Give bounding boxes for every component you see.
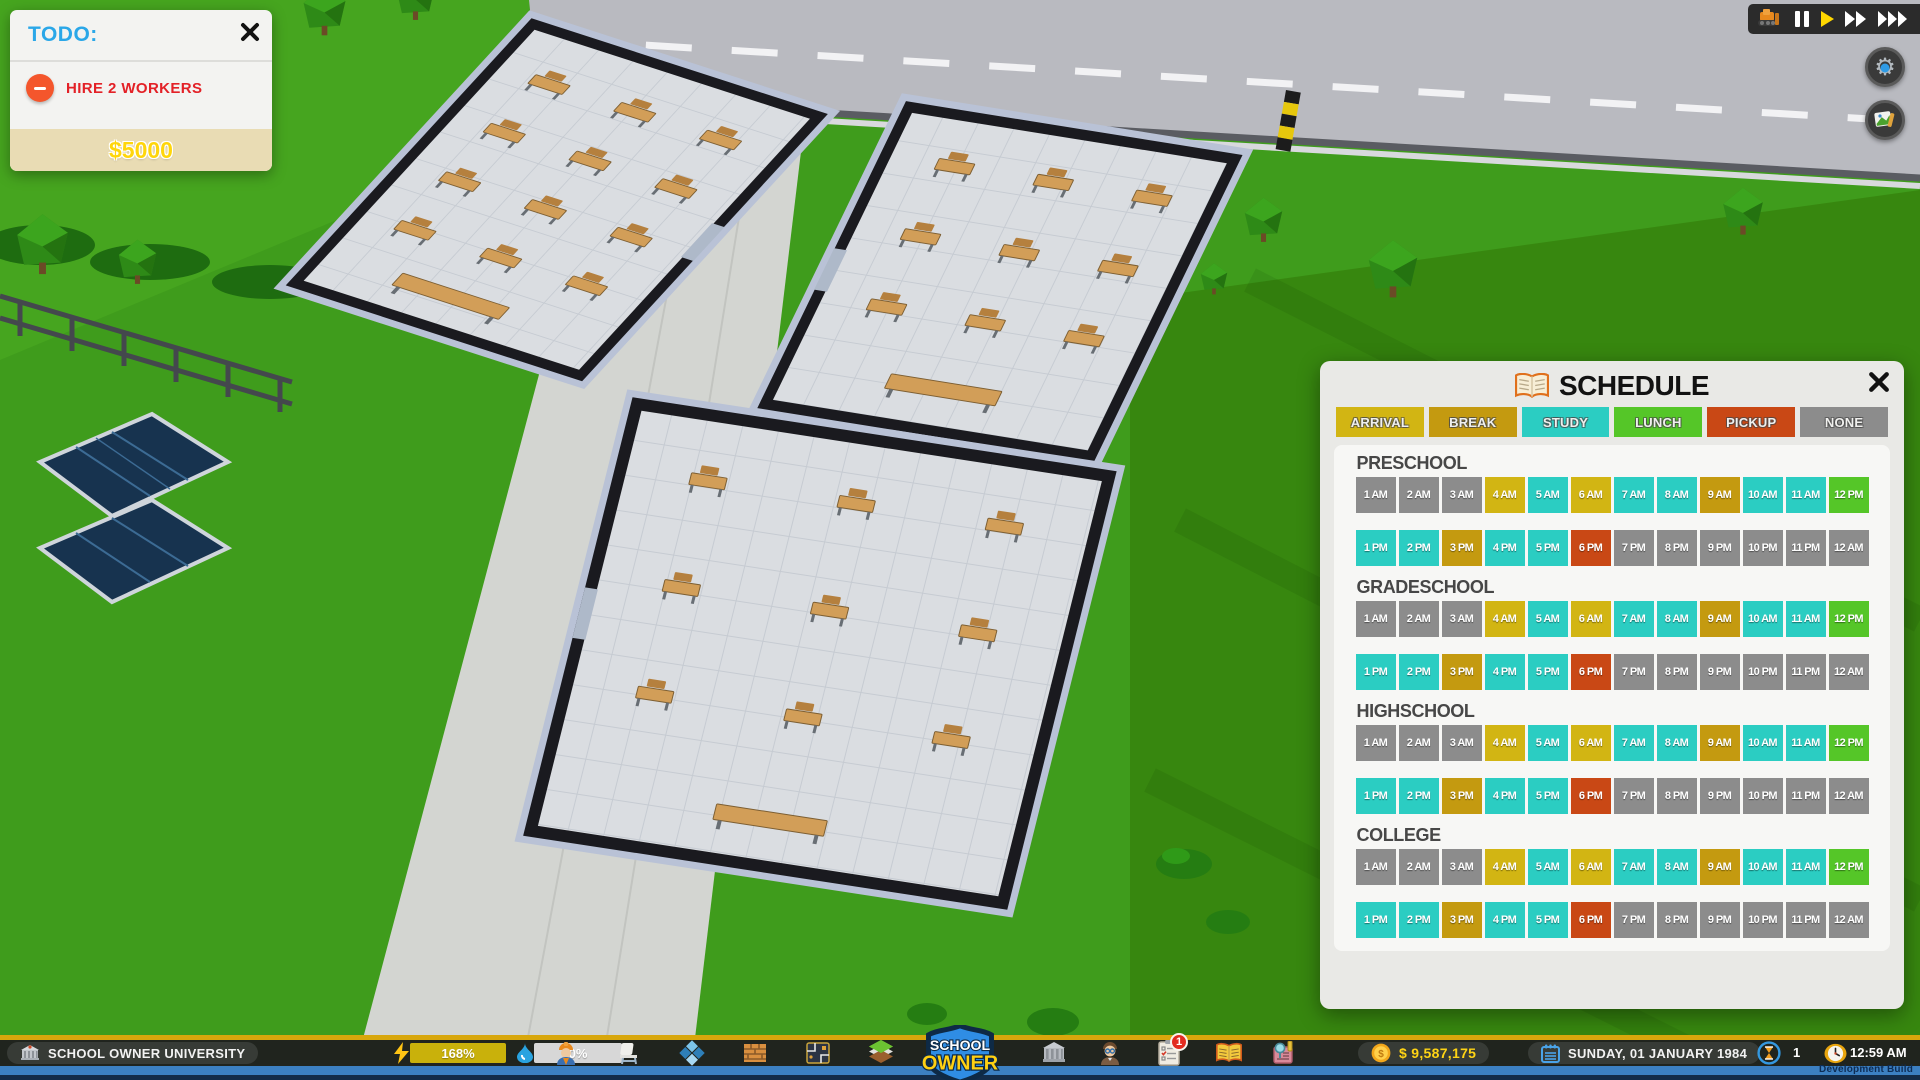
- schedule-cell-1pm[interactable]: 1 PM: [1356, 778, 1396, 814]
- schedule-cell-2pm[interactable]: 2 PM: [1399, 902, 1439, 938]
- schedule-cell-4pm[interactable]: 4 PM: [1485, 530, 1525, 566]
- task-status-icon: [26, 74, 54, 102]
- room-planner-button[interactable]: [805, 1040, 831, 1066]
- schedule-cell-11pm[interactable]: 11 PM: [1786, 530, 1826, 566]
- legend-break[interactable]: BREAK: [1429, 407, 1517, 437]
- schedule-cell-5pm[interactable]: 5 PM: [1528, 530, 1568, 566]
- schedule-cell-4pm[interactable]: 4 PM: [1485, 654, 1525, 690]
- schedule-cell-7pm[interactable]: 7 PM: [1614, 902, 1654, 938]
- schedule-cell-3pm[interactable]: 3 PM: [1442, 654, 1482, 690]
- schedule-cell-10am[interactable]: 10 AM: [1743, 849, 1783, 885]
- schedule-cell-7am[interactable]: 7 AM: [1614, 601, 1654, 637]
- calendar-icon: [1541, 1044, 1560, 1063]
- schedule-cell-12pm[interactable]: 12 PM: [1829, 849, 1869, 885]
- schedule-cell-1pm[interactable]: 1 PM: [1356, 530, 1396, 566]
- schedule-cell-5am[interactable]: 5 AM: [1528, 477, 1568, 513]
- staff-button[interactable]: [1097, 1040, 1123, 1066]
- schedule-cell-4am[interactable]: 4 AM: [1485, 601, 1525, 637]
- schedule-cell-7pm[interactable]: 7 PM: [1614, 530, 1654, 566]
- finance-button[interactable]: [1041, 1040, 1067, 1066]
- schedule-section-highschool: HIGHSCHOOL1 AM2 AM3 AM4 AM5 AM6 AM7 AM8 …: [1356, 701, 1869, 814]
- schedule-cell-5am[interactable]: 5 AM: [1528, 849, 1568, 885]
- schedule-cell-10am[interactable]: 10 AM: [1743, 601, 1783, 637]
- schedule-cell-5pm[interactable]: 5 PM: [1528, 654, 1568, 690]
- wall-button[interactable]: [742, 1040, 768, 1066]
- schedule-legend: ARRIVALBREAKSTUDYLUNCHPICKUPNONE: [1336, 407, 1888, 437]
- schedule-cell-10am[interactable]: 10 AM: [1743, 477, 1783, 513]
- schedule-row: 1 AM2 AM3 AM4 AM5 AM6 AM7 AM8 AM9 AM10 A…: [1356, 725, 1869, 761]
- schedule-row: 1 PM2 PM3 PM4 PM5 PM6 PM7 PM8 PM9 PM10 P…: [1356, 778, 1869, 814]
- schedule-cell-7am[interactable]: 7 AM: [1614, 725, 1654, 761]
- blueprint-button[interactable]: [1865, 100, 1905, 140]
- schedule-cell-2am[interactable]: 2 AM: [1399, 601, 1439, 637]
- schedule-cell-12pm[interactable]: 12 PM: [1829, 477, 1869, 513]
- schedule-cell-9am[interactable]: 9 AM: [1700, 601, 1740, 637]
- schedule-cell-2am[interactable]: 2 AM: [1399, 849, 1439, 885]
- schedule-cell-11am[interactable]: 11 AM: [1786, 477, 1826, 513]
- schedule-cell-10pm[interactable]: 10 PM: [1743, 902, 1783, 938]
- todo-task-row[interactable]: HIRE 2 WORKERS: [10, 62, 272, 114]
- schedule-cell-7pm[interactable]: 7 PM: [1614, 778, 1654, 814]
- research-button[interactable]: [1271, 1040, 1297, 1066]
- schedule-row: 1 AM2 AM3 AM4 AM5 AM6 AM7 AM8 AM9 AM10 A…: [1356, 477, 1869, 513]
- game-viewport: TODO: HIRE 2 WORKERS $5000 ⚙ SCHEDULE AR: [0, 0, 1920, 1080]
- close-icon[interactable]: [240, 22, 260, 42]
- schedule-cell-12am[interactable]: 12 AM: [1829, 654, 1869, 690]
- schedule-cell-7pm[interactable]: 7 PM: [1614, 654, 1654, 690]
- coin-icon: $: [1371, 1043, 1391, 1063]
- schedule-cell-8pm[interactable]: 8 PM: [1657, 778, 1697, 814]
- schedule-cell-6pm[interactable]: 6 PM: [1571, 778, 1611, 814]
- section-label: GRADESCHOOL: [1357, 577, 1869, 598]
- settings-button[interactable]: ⚙: [1865, 47, 1905, 87]
- gear-icon: ⚙: [1874, 55, 1896, 79]
- schedule-cell-8am[interactable]: 8 AM: [1657, 477, 1697, 513]
- time-value: 12:59 AM: [1850, 1045, 1907, 1060]
- legend-arrival[interactable]: ARRIVAL: [1336, 407, 1424, 437]
- schedule-cell-8am[interactable]: 8 AM: [1657, 849, 1697, 885]
- schedule-cell-9am[interactable]: 9 AM: [1700, 477, 1740, 513]
- schedule-cell-10pm[interactable]: 10 PM: [1743, 530, 1783, 566]
- schedule-cell-5pm[interactable]: 5 PM: [1528, 902, 1568, 938]
- bottom-bar: SCHOOL OWNER UNIVERSITY 168% 0%: [0, 1035, 1920, 1080]
- svg-text:$: $: [1378, 1049, 1384, 1060]
- schedule-cell-6pm[interactable]: 6 PM: [1571, 902, 1611, 938]
- schedule-cell-2am[interactable]: 2 AM: [1399, 725, 1439, 761]
- schedule-cell-9pm[interactable]: 9 PM: [1700, 778, 1740, 814]
- schedule-cell-9pm[interactable]: 9 PM: [1700, 654, 1740, 690]
- bottom-bar-main: SCHOOL OWNER UNIVERSITY 168% 0%: [0, 1040, 1920, 1066]
- schedule-section-gradeschool: GRADESCHOOL1 AM2 AM3 AM4 AM5 AM6 AM7 AM8…: [1356, 577, 1869, 690]
- schedule-cell-9am[interactable]: 9 AM: [1700, 725, 1740, 761]
- schedule-cell-3pm[interactable]: 3 PM: [1442, 778, 1482, 814]
- time-controls: [1748, 4, 1920, 34]
- schedule-button[interactable]: [1216, 1040, 1242, 1066]
- schedule-cell-2pm[interactable]: 2 PM: [1399, 530, 1439, 566]
- schedule-cell-11pm[interactable]: 11 PM: [1786, 778, 1826, 814]
- schedule-cell-3pm[interactable]: 3 PM: [1442, 530, 1482, 566]
- schedule-cell-8am[interactable]: 8 AM: [1657, 725, 1697, 761]
- schedule-cell-9pm[interactable]: 9 PM: [1700, 530, 1740, 566]
- schedule-row: 1 PM2 PM3 PM4 PM5 PM6 PM7 PM8 PM9 PM10 P…: [1356, 654, 1869, 690]
- schedule-cell-12pm[interactable]: 12 PM: [1829, 725, 1869, 761]
- school-name: SCHOOL OWNER UNIVERSITY: [48, 1046, 245, 1061]
- schedule-sections: PRESCHOOL1 AM2 AM3 AM4 AM5 AM6 AM7 AM8 A…: [1356, 453, 1869, 938]
- schedule-cell-1am[interactable]: 1 AM: [1356, 477, 1396, 513]
- schedule-cell-8am[interactable]: 8 AM: [1657, 601, 1697, 637]
- schedule-row: 1 PM2 PM3 PM4 PM5 PM6 PM7 PM8 PM9 PM10 P…: [1356, 530, 1869, 566]
- school-name-pill[interactable]: SCHOOL OWNER UNIVERSITY: [7, 1042, 258, 1064]
- schedule-section-college: COLLEGE1 AM2 AM3 AM4 AM5 AM6 AM7 AM8 AM9…: [1356, 825, 1869, 938]
- schedule-cell-6pm[interactable]: 6 PM: [1571, 654, 1611, 690]
- game-speed-icon[interactable]: [1756, 1040, 1782, 1066]
- schedule-cell-8pm[interactable]: 8 PM: [1657, 902, 1697, 938]
- schedule-row: 1 AM2 AM3 AM4 AM5 AM6 AM7 AM8 AM9 AM10 A…: [1356, 849, 1869, 885]
- schedule-cell-3am[interactable]: 3 AM: [1442, 601, 1482, 637]
- schedule-body: PRESCHOOL1 AM2 AM3 AM4 AM5 AM6 AM7 AM8 A…: [1334, 445, 1890, 951]
- schedule-cell-10pm[interactable]: 10 PM: [1743, 654, 1783, 690]
- game-speed-value: 1: [1793, 1045, 1800, 1060]
- schedule-cell-12am[interactable]: 12 AM: [1829, 530, 1869, 566]
- schedule-cell-10am[interactable]: 10 AM: [1743, 725, 1783, 761]
- schedule-cell-5am[interactable]: 5 AM: [1528, 725, 1568, 761]
- logo-school-text: SCHOOL: [930, 1037, 991, 1053]
- schedule-cell-1am[interactable]: 1 AM: [1356, 601, 1396, 637]
- power-meter: 168%: [410, 1043, 506, 1063]
- pause-button[interactable]: [1795, 11, 1809, 27]
- schedule-cell-11pm[interactable]: 11 PM: [1786, 902, 1826, 938]
- todo-header: TODO:: [10, 10, 272, 62]
- todo-title: TODO:: [28, 23, 98, 47]
- schedule-cell-11pm[interactable]: 11 PM: [1786, 654, 1826, 690]
- school-owner-logo: SCHOOL OWNER: [908, 1025, 1012, 1080]
- todo-footer: $5000: [10, 129, 272, 171]
- legend-pickup[interactable]: PICKUP: [1707, 407, 1795, 437]
- schedule-cell-12am[interactable]: 12 AM: [1829, 902, 1869, 938]
- section-label: COLLEGE: [1357, 825, 1869, 846]
- schedule-cell-5pm[interactable]: 5 PM: [1528, 778, 1568, 814]
- schedule-cell-2am[interactable]: 2 AM: [1399, 477, 1439, 513]
- schedule-cell-11am[interactable]: 11 AM: [1786, 849, 1826, 885]
- todo-task-label: HIRE 2 WORKERS: [66, 80, 202, 97]
- schedule-cell-7am[interactable]: 7 AM: [1614, 849, 1654, 885]
- logo-owner-text: OWNER: [922, 1053, 998, 1075]
- building-c: [522, 396, 1118, 911]
- schedule-cell-4am[interactable]: 4 AM: [1485, 725, 1525, 761]
- terrain-button[interactable]: [868, 1040, 894, 1066]
- schedule-cell-7am[interactable]: 7 AM: [1614, 477, 1654, 513]
- schedule-title: SCHEDULE: [1559, 370, 1709, 402]
- schedule-cell-4pm[interactable]: 4 PM: [1485, 902, 1525, 938]
- schedule-cell-5am[interactable]: 5 AM: [1528, 601, 1568, 637]
- schedule-cell-11am[interactable]: 11 AM: [1786, 601, 1826, 637]
- schedule-cell-9pm[interactable]: 9 PM: [1700, 902, 1740, 938]
- legend-study[interactable]: STUDY: [1522, 407, 1610, 437]
- schedule-cell-4am[interactable]: 4 AM: [1485, 477, 1525, 513]
- schedule-cell-6am[interactable]: 6 AM: [1571, 601, 1611, 637]
- legend-lunch[interactable]: LUNCH: [1614, 407, 1702, 437]
- schedule-cell-3am[interactable]: 3 AM: [1442, 477, 1482, 513]
- schedule-cell-6am[interactable]: 6 AM: [1571, 725, 1611, 761]
- date-display: SUNDAY, 01 JANUARY 1984: [1528, 1042, 1760, 1064]
- todo-reward: $5000: [109, 137, 173, 164]
- schedule-cell-9am[interactable]: 9 AM: [1700, 849, 1740, 885]
- schedule-cell-12pm[interactable]: 12 PM: [1829, 601, 1869, 637]
- schedule-cell-1pm[interactable]: 1 PM: [1356, 902, 1396, 938]
- schedule-cell-1pm[interactable]: 1 PM: [1356, 654, 1396, 690]
- todo-panel: TODO: HIRE 2 WORKERS $5000: [10, 10, 272, 171]
- section-label: PRESCHOOL: [1357, 453, 1869, 474]
- schedule-cell-10pm[interactable]: 10 PM: [1743, 778, 1783, 814]
- schedule-titlebar: SCHEDULE: [1320, 361, 1904, 403]
- schedule-cell-12am[interactable]: 12 AM: [1829, 778, 1869, 814]
- schedule-cell-2pm[interactable]: 2 PM: [1399, 654, 1439, 690]
- schedule-cell-4pm[interactable]: 4 PM: [1485, 778, 1525, 814]
- legend-none[interactable]: NONE: [1800, 407, 1888, 437]
- dev-build-label: Development Build: [1819, 1064, 1913, 1075]
- schedule-cell-1am[interactable]: 1 AM: [1356, 725, 1396, 761]
- furniture-button[interactable]: [616, 1040, 642, 1066]
- clock-icon: [1822, 1040, 1848, 1066]
- bulldozer-icon: [1756, 9, 1784, 29]
- schedule-cell-8pm[interactable]: 8 PM: [1657, 530, 1697, 566]
- play-button[interactable]: [1820, 11, 1834, 27]
- hire-worker-button[interactable]: [553, 1040, 579, 1066]
- schedule-cell-6am[interactable]: 6 AM: [1571, 477, 1611, 513]
- money-display[interactable]: $ $ 9,587,175: [1358, 1042, 1489, 1064]
- money-value: $ 9,587,175: [1399, 1045, 1476, 1061]
- floor-tiles-button[interactable]: [679, 1040, 705, 1066]
- schedule-cell-4am[interactable]: 4 AM: [1485, 849, 1525, 885]
- section-label: HIGHSCHOOL: [1357, 701, 1869, 722]
- schedule-section-preschool: PRESCHOOL1 AM2 AM3 AM4 AM5 AM6 AM7 AM8 A…: [1356, 453, 1869, 566]
- school-building-icon: [20, 1045, 40, 1061]
- schedule-cell-11am[interactable]: 11 AM: [1786, 725, 1826, 761]
- schedule-cell-2pm[interactable]: 2 PM: [1399, 778, 1439, 814]
- power-percent: 168%: [441, 1046, 474, 1061]
- schedule-cell-3am[interactable]: 3 AM: [1442, 849, 1482, 885]
- schedule-row: 1 AM2 AM3 AM4 AM5 AM6 AM7 AM8 AM9 AM10 A…: [1356, 601, 1869, 637]
- date-value: SUNDAY, 01 JANUARY 1984: [1568, 1046, 1747, 1061]
- schedule-cell-3am[interactable]: 3 AM: [1442, 725, 1482, 761]
- close-icon[interactable]: [1868, 371, 1890, 393]
- schedule-cell-3pm[interactable]: 3 PM: [1442, 902, 1482, 938]
- fast-forward-button[interactable]: [1845, 11, 1867, 27]
- map-edit-icon: [1874, 109, 1896, 131]
- fastest-forward-button[interactable]: [1878, 11, 1908, 27]
- schedule-cell-8pm[interactable]: 8 PM: [1657, 654, 1697, 690]
- schedule-panel: SCHEDULE ARRIVALBREAKSTUDYLUNCHPICKUPNON…: [1320, 361, 1904, 1009]
- schedule-row: 1 PM2 PM3 PM4 PM5 PM6 PM7 PM8 PM9 PM10 P…: [1356, 902, 1869, 938]
- schedule-book-icon: [1515, 373, 1549, 399]
- schedule-cell-6pm[interactable]: 6 PM: [1571, 530, 1611, 566]
- notification-badge: 1: [1170, 1033, 1188, 1051]
- schedule-cell-1am[interactable]: 1 AM: [1356, 849, 1396, 885]
- schedule-cell-6am[interactable]: 6 AM: [1571, 849, 1611, 885]
- todo-list-button[interactable]: 1: [1156, 1040, 1182, 1066]
